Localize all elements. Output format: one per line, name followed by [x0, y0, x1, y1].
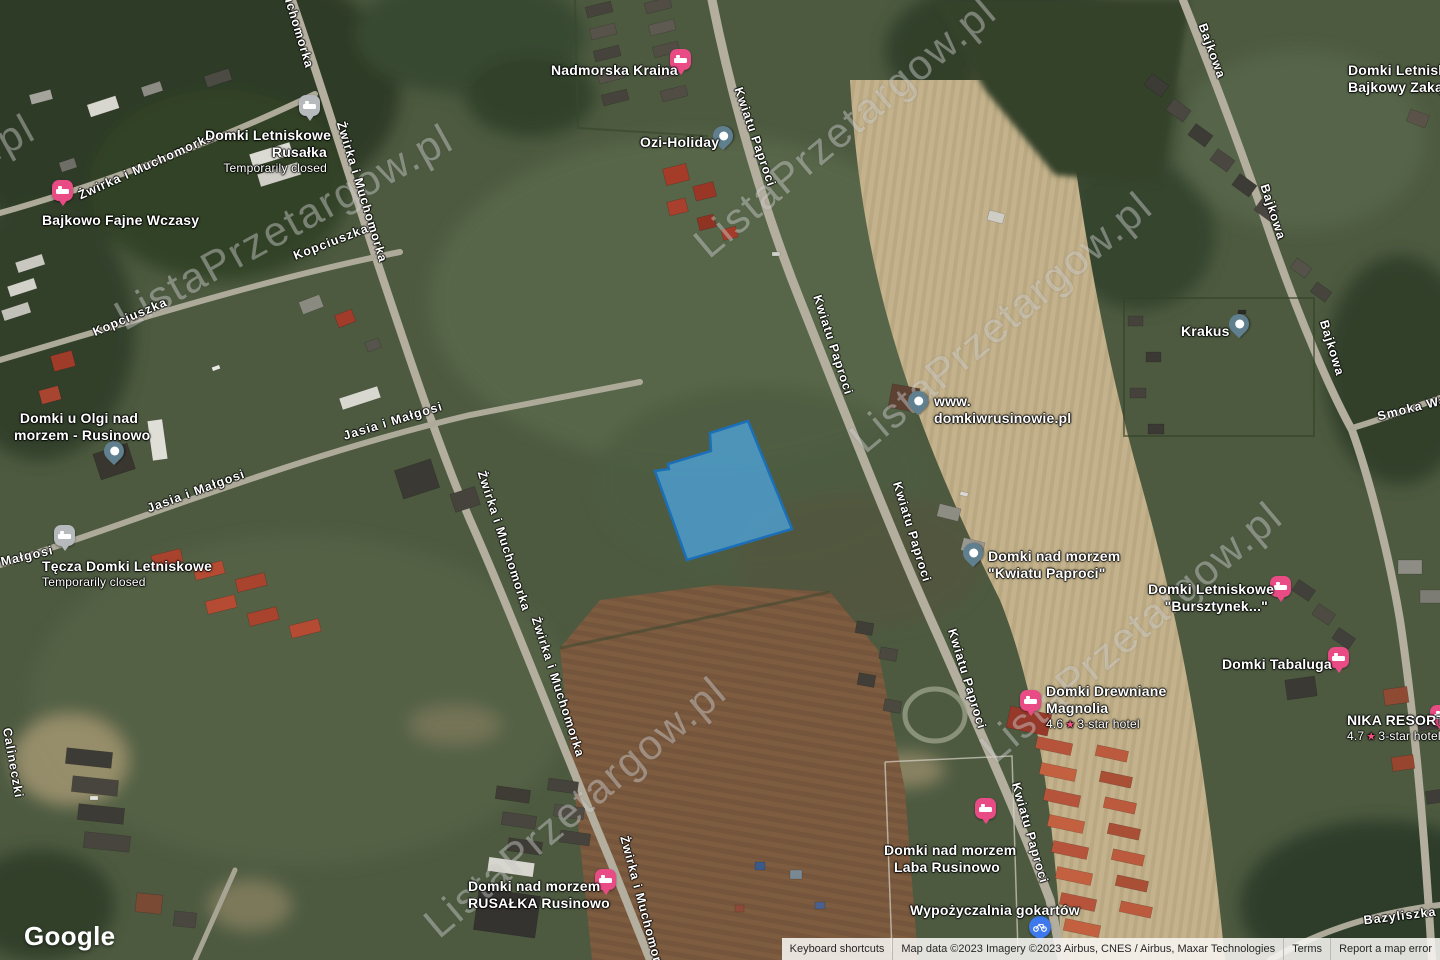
poi-text: Wypożyczalnia gokartów — [910, 902, 1080, 919]
poi-text: Domki Letniskowe — [1348, 62, 1440, 79]
star-icon — [1364, 729, 1378, 743]
rating-value: 4.7 — [1347, 729, 1364, 743]
poi-text: Domki nad morzem — [884, 842, 1010, 859]
bed-icon — [1274, 585, 1287, 590]
terms-link[interactable]: Terms — [1283, 938, 1330, 960]
poi-text: Domki u Olgi nad — [14, 410, 144, 427]
poi-label-ozi-holiday[interactable]: Ozi-Holiday — [640, 134, 719, 151]
poi-text: Tęcza Domki Letniskowe — [42, 558, 212, 575]
keyboard-shortcuts-button[interactable]: Keyboard shortcuts — [782, 938, 893, 960]
hotel-category: 3-star hotel — [1077, 717, 1139, 731]
bed-icon — [58, 534, 71, 539]
bicycle-icon — [1033, 922, 1047, 932]
bed-icon — [303, 104, 316, 109]
poi-label-magnolia[interactable]: Domki Drewniane Magnolia 4.63-star hotel — [1046, 683, 1166, 733]
lodging-pin-magnolia[interactable] — [1020, 690, 1041, 711]
poi-label-nadmorska-kraina[interactable]: Nadmorska Kraina — [551, 62, 678, 79]
poi-label-bajkowo[interactable]: Bajkowo Fajne Wczasy — [42, 212, 199, 229]
poi-text: Krakus — [1181, 323, 1230, 340]
poi-text: Domki Letniskowe — [1148, 581, 1268, 598]
poi-label-laba[interactable]: Domki nad morzem Laba Rusinowo — [884, 842, 1010, 876]
poi-text: Domki Drewniane — [1046, 683, 1166, 700]
bed-icon — [1332, 656, 1345, 661]
poi-text: www. — [934, 393, 1071, 410]
poi-text: Bajkowy Zakątek — [1348, 79, 1440, 96]
lodging-pin-rusalka-closed[interactable] — [299, 95, 320, 116]
poi-text: Domki nad morzem — [468, 878, 600, 895]
gokart-pin-wypozyczalnia[interactable] — [1029, 916, 1051, 938]
poi-text: Ozi-Holiday — [640, 134, 719, 151]
poi-text: Laba Rusinowo — [884, 859, 1010, 876]
poi-label-domkiwrusinowie[interactable]: www. domkiwrusinowie.pl — [934, 393, 1071, 427]
report-map-error-link[interactable]: Report a map error — [1330, 938, 1440, 960]
bed-icon — [56, 189, 69, 194]
hotel-category: 3-star hotel — [1378, 729, 1440, 743]
bed-icon — [1024, 699, 1037, 704]
satellite-map-canvas[interactable]: ListaPrzetargow.pl ListaPrzetargow.pl Li… — [0, 0, 1440, 960]
poi-label-bursztynek[interactable]: Domki Letniskowe "Bursztynek..." — [1148, 581, 1268, 615]
poi-label-rusalka-closed[interactable]: Domki Letniskowe Rusałka Temporarily clo… — [205, 127, 327, 176]
poi-rating-row: 4.63-star hotel — [1046, 717, 1166, 732]
poi-label-tabaluga[interactable]: Domki Tabaluga — [1222, 656, 1332, 673]
rating-value: 4.6 — [1046, 717, 1063, 731]
poi-text: Domki nad morzem — [988, 548, 1120, 565]
lodging-pin-tecza[interactable] — [54, 525, 75, 546]
poi-status: Temporarily closed — [42, 575, 212, 590]
poi-text: "Kwiatu Paproci" — [988, 565, 1120, 582]
poi-text: domkiwrusinowie.pl — [934, 410, 1071, 427]
poi-text: Rusałka — [205, 144, 327, 161]
map-data-attribution: Map data ©2023 Imagery ©2023 Airbus, CNE… — [892, 938, 1283, 960]
poi-text: morzem - Rusinowo — [14, 427, 144, 444]
poi-label-nika-resort[interactable]: NIKA RESORT 4.73-star hotel — [1347, 712, 1440, 744]
poi-status: Temporarily closed — [205, 161, 327, 176]
star-icon — [1063, 717, 1077, 731]
poi-label-tecza[interactable]: Tęcza Domki Letniskowe Temporarily close… — [42, 558, 212, 590]
poi-text: Magnolia — [1046, 700, 1166, 717]
poi-label-krakus[interactable]: Krakus — [1181, 323, 1230, 340]
bed-icon — [599, 878, 612, 883]
poi-text: NIKA RESORT — [1347, 712, 1440, 729]
google-logo[interactable]: Google — [24, 921, 115, 952]
poi-text: Domki Letniskowe — [205, 127, 327, 144]
poi-text: Bajkowo Fajne Wczasy — [42, 212, 199, 229]
bed-icon — [979, 807, 992, 812]
poi-text: RUSAŁKA Rusinowo — [468, 895, 600, 912]
poi-text: Nadmorska Kraina — [551, 62, 678, 79]
poi-text: "Bursztynek..." — [1148, 598, 1268, 615]
attribution-bar: Keyboard shortcuts Map data ©2023 Imager… — [782, 938, 1440, 960]
lodging-pin-laba[interactable] — [975, 798, 996, 819]
poi-label-gokarty[interactable]: Wypożyczalnia gokartów — [910, 902, 1080, 919]
poi-text: Domki Tabaluga — [1222, 656, 1332, 673]
poi-label-bajkowy-zakatek[interactable]: Domki Letniskowe Bajkowy Zakątek — [1348, 62, 1440, 96]
lodging-pin-bajkowo[interactable] — [52, 180, 73, 201]
poi-label-domki-u-olgi[interactable]: Domki u Olgi nad morzem - Rusinowo — [14, 410, 144, 444]
poi-label-kwiatu-paproci[interactable]: Domki nad morzem "Kwiatu Paproci" — [988, 548, 1120, 582]
poi-label-rusalka-rusinowo[interactable]: Domki nad morzem RUSAŁKA Rusinowo — [468, 878, 600, 912]
poi-rating-row: 4.73-star hotel — [1347, 729, 1440, 744]
